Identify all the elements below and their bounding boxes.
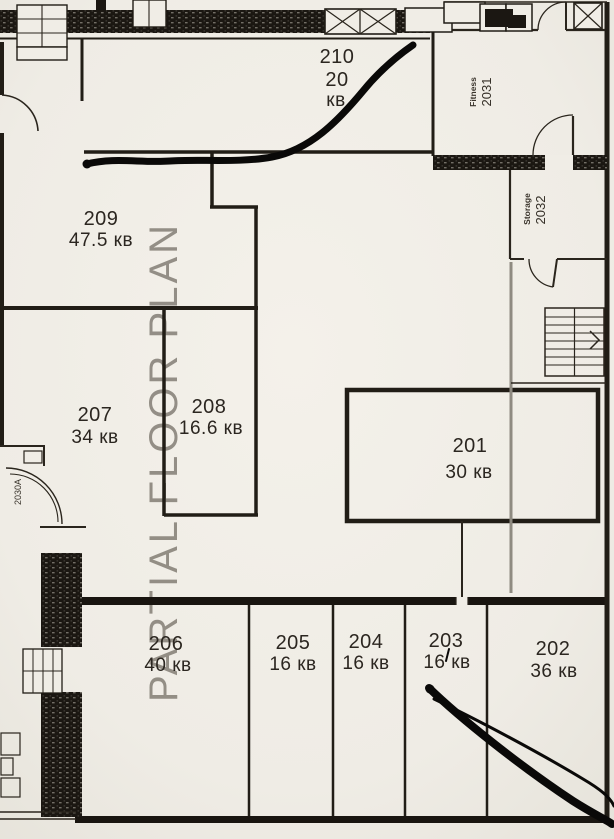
svg-text:204: 204 — [349, 631, 384, 653]
svg-text:40 кв: 40 кв — [144, 655, 191, 676]
bottom-row-top-wall — [81, 597, 607, 605]
svg-text:34 кв: 34 кв — [71, 427, 118, 448]
storage-room-name: Storage — [522, 193, 532, 225]
svg-text:16.6 кв: 16.6 кв — [179, 418, 243, 439]
fitness-room-name: Fitness — [468, 77, 478, 107]
svg-text:208: 208 — [192, 396, 227, 418]
room-204-label: 204 16 кв — [342, 631, 389, 674]
svg-text:36 кв: 36 кв — [530, 661, 577, 682]
svg-text:207: 207 — [78, 404, 113, 426]
wall-blob — [508, 15, 526, 28]
svg-text:206: 206 — [149, 633, 184, 655]
svg-text:47.5 кв: 47.5 кв — [69, 230, 133, 251]
svg-text:210: 210 — [320, 46, 355, 68]
room-205-label: 205 16 кв — [269, 632, 316, 675]
wall-fixture-box — [444, 2, 485, 23]
svg-text:16 кв: 16 кв — [342, 653, 389, 674]
corner-x-box — [574, 3, 602, 29]
svg-text:кв: кв — [326, 90, 345, 111]
storage-room-number: 2032 — [533, 196, 548, 225]
fitness-bottom-wall — [433, 155, 607, 170]
bottom-outer-wall — [75, 816, 609, 823]
svg-text:201: 201 — [453, 435, 488, 457]
top-left-grid-fixture — [17, 5, 67, 60]
svg-text:205: 205 — [276, 632, 311, 654]
shaft-x-boxes — [325, 9, 396, 34]
service-shaft-upper — [41, 553, 82, 647]
floor-plan-photo: PARTIAL FLOOR PLAN — [0, 0, 614, 839]
wall-stub — [96, 0, 106, 12]
svg-text:30 кв: 30 кв — [445, 462, 492, 483]
svg-text:16 кв: 16 кв — [269, 654, 316, 675]
fitness-room-number: 2031 — [479, 78, 494, 107]
service-shaft-lower — [41, 692, 82, 817]
svg-text:203: 203 — [429, 630, 464, 652]
svg-text:209: 209 — [84, 208, 119, 230]
svg-text:20: 20 — [325, 69, 348, 91]
entry-door-label: 2030A — [13, 479, 23, 505]
shelf-fixture — [23, 649, 62, 693]
svg-text:202: 202 — [536, 638, 571, 660]
floor-plan-svg: PARTIAL FLOOR PLAN — [0, 0, 614, 839]
